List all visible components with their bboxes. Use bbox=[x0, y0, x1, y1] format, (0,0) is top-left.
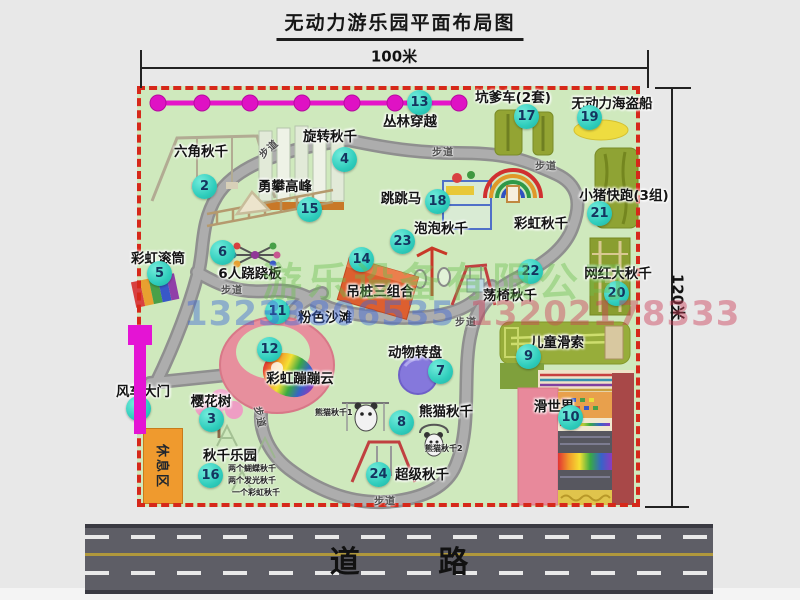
windmill-gate-pole bbox=[134, 344, 146, 434]
badge-11: 11 bbox=[265, 299, 290, 324]
badge-12: 12 bbox=[257, 337, 282, 362]
label-swing-chair: 荡椅秋千 bbox=[483, 284, 537, 304]
label-pink-beach: 粉色沙滩 bbox=[298, 306, 352, 326]
windmill-gate-icon bbox=[128, 325, 152, 345]
path-label-5: 步道 bbox=[455, 314, 477, 329]
road-label: 道 路 bbox=[296, 537, 502, 581]
width-dimension-tick-right bbox=[647, 50, 649, 88]
badge-20: 20 bbox=[604, 281, 629, 306]
badge-22: 22 bbox=[518, 259, 543, 284]
note-swing-park-2: 两个发光秋千 bbox=[228, 475, 276, 486]
badge-19: 19 bbox=[577, 105, 602, 130]
label-super-swing: 超级秋千 bbox=[395, 463, 449, 483]
badge-2: 2 bbox=[192, 174, 217, 199]
label-animal-turntable: 动物转盘 bbox=[388, 341, 442, 361]
path-label-7: 步道 bbox=[374, 493, 396, 508]
label-jungle-crossing: 丛林穿越 bbox=[383, 110, 437, 130]
rest-area: 休息区 bbox=[143, 428, 183, 504]
label-big-net-swing: 网红大秋千 bbox=[584, 262, 652, 282]
badge-17: 17 bbox=[514, 104, 539, 129]
width-dimension-label: 100米 bbox=[371, 46, 417, 67]
width-dimension-line bbox=[141, 67, 648, 69]
badge-6: 6 bbox=[210, 240, 235, 265]
badge-15: 15 bbox=[297, 197, 322, 222]
note-panda-swing-2: 熊猫秋千2 bbox=[425, 443, 463, 454]
label-bubble-swing: 泡泡秋千 bbox=[414, 217, 468, 237]
height-dimension-label: 120米 bbox=[668, 274, 689, 320]
badge-4: 4 bbox=[332, 147, 357, 172]
label-swing-park: 秋千乐园 bbox=[203, 444, 257, 464]
park-map: 休息区 步道 步道 步道 步道 步道 步道 步道 风车大门 1 六角秋千 2 樱… bbox=[137, 86, 640, 507]
height-dimension-tick-top bbox=[655, 87, 691, 89]
label-rainbow-swing: 彩虹秋千 bbox=[514, 212, 568, 232]
badge-9: 9 bbox=[516, 344, 541, 369]
badge-23: 23 bbox=[390, 229, 415, 254]
rest-area-label: 休息区 bbox=[154, 443, 173, 488]
slide-world-icon bbox=[500, 363, 634, 505]
label-pit-car: 坑爹车(2套) bbox=[475, 86, 551, 106]
label-panda-swing: 熊猫秋千 bbox=[419, 400, 473, 420]
badge-21: 21 bbox=[587, 201, 612, 226]
badge-13: 13 bbox=[407, 90, 432, 115]
path-label-4: 步道 bbox=[221, 282, 243, 297]
path-label-3: 步道 bbox=[535, 158, 557, 173]
badge-10: 10 bbox=[558, 405, 583, 430]
badge-8: 8 bbox=[389, 410, 414, 435]
height-dimension-tick-bottom bbox=[645, 506, 689, 508]
label-hanging-piles: 吊桩三组合 bbox=[346, 280, 414, 300]
badge-3: 3 bbox=[199, 407, 224, 432]
bounce-cloud-icon bbox=[220, 317, 334, 413]
badge-5: 5 bbox=[147, 261, 172, 286]
label-climbing-peak: 勇攀高峰 bbox=[258, 175, 312, 195]
note-panda-swing-1: 熊猫秋千1 bbox=[315, 407, 353, 418]
label-jumping-horse: 跳跳马 bbox=[381, 187, 422, 207]
rainbow-swing-icon bbox=[485, 170, 541, 202]
page-title: 无动力游乐园平面布局图 bbox=[276, 8, 523, 41]
label-bounce-cloud: 彩虹蹦蹦云 bbox=[266, 367, 334, 387]
bubble-swing-icon bbox=[414, 248, 450, 296]
note-swing-park-1: 两个蝴蝶秋千 bbox=[228, 463, 276, 474]
note-swing-park-3: 一个彩虹秋千 bbox=[232, 487, 280, 498]
badge-14: 14 bbox=[349, 247, 374, 272]
badge-18: 18 bbox=[425, 189, 450, 214]
badge-16: 16 bbox=[198, 463, 223, 488]
label-pig-run: 小猪快跑(3组) bbox=[579, 184, 668, 204]
screenshot: 无动力游乐园平面布局图 100米 120米 游乐设备有限公司 132338065… bbox=[0, 0, 800, 600]
width-dimension-tick-left bbox=[140, 50, 142, 88]
label-six-seesaw: 6人跷跷板 bbox=[218, 262, 281, 282]
label-hexagon-swing: 六角秋千 bbox=[174, 140, 228, 160]
label-rotating-swing: 旋转秋千 bbox=[303, 125, 357, 145]
road: 道 路 bbox=[85, 524, 713, 594]
badge-24: 24 bbox=[366, 462, 391, 487]
path-label-2: 步道 bbox=[432, 144, 454, 159]
badge-7: 7 bbox=[428, 359, 453, 384]
